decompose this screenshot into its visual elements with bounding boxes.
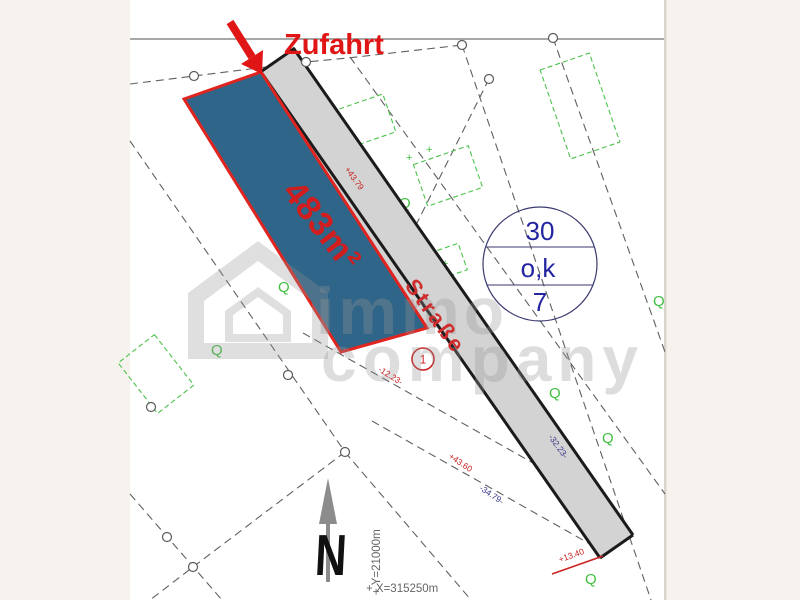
survey-point-icon — [549, 34, 558, 43]
cadastral-plan-canvas: + + + Q Q Q Q Q Q Q 30 o — [0, 0, 800, 600]
survey-point-icon — [458, 41, 467, 50]
site-plan-image: + + + Q Q Q Q Q Q Q 30 o — [0, 0, 800, 600]
north-label: N — [314, 523, 349, 587]
survey-point-icon — [189, 563, 198, 572]
green-cross-mark: + — [426, 144, 432, 156]
badge-value-middle: o,k — [521, 253, 557, 283]
coordinate-x-label: + X=315250m — [366, 583, 438, 595]
land-use-label: Q — [585, 571, 597, 588]
survey-point-icon — [190, 72, 199, 81]
badge-value-top: 30 — [526, 216, 555, 246]
access-label: Zufahrt — [284, 29, 384, 61]
survey-point-icon — [284, 371, 293, 380]
land-use-label: Q — [653, 293, 665, 310]
survey-point-icon — [485, 75, 494, 84]
survey-point-icon — [163, 533, 172, 542]
survey-point-icon — [147, 403, 156, 412]
survey-point-icon — [341, 448, 350, 457]
land-use-label: Q — [602, 430, 614, 447]
watermark-brand-line2: company — [321, 323, 644, 395]
green-cross-mark: + — [406, 152, 412, 164]
badge-value-bottom: 7 — [533, 287, 547, 317]
